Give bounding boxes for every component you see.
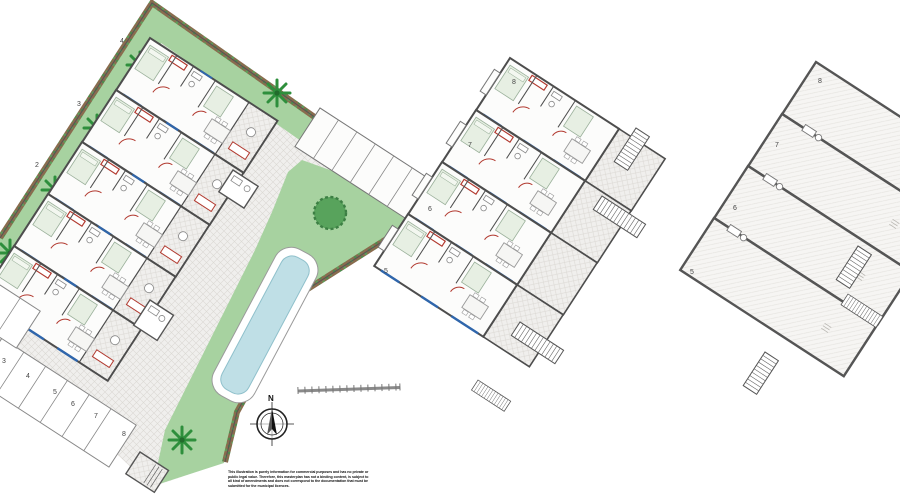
unit-number: 6 — [733, 205, 737, 212]
north-compass-icon — [250, 402, 294, 446]
palm-tree — [169, 427, 195, 453]
parking-number: 8 — [122, 431, 126, 438]
disclaimer-text: This illustration is purely information … — [228, 470, 406, 489]
north-label: N — [268, 394, 274, 403]
site-plan-page: 4 3 2 3 4 5 6 7 8 8 7 6 5 8 7 6 5 N This… — [0, 0, 900, 500]
first-floor-block — [368, 54, 665, 411]
palm-tree — [264, 80, 290, 106]
ground-floor-block — [0, 3, 440, 492]
external-stair — [471, 380, 510, 411]
disclaimer-line: submitted for the municipal licences. — [228, 484, 406, 489]
parking-number: 4 — [26, 373, 30, 380]
unit-number: 5 — [690, 269, 694, 276]
solarium-block — [680, 62, 900, 394]
unit-number: 8 — [818, 78, 822, 85]
unit-number: 5 — [384, 268, 388, 275]
floor-plan-drawing — [0, 0, 900, 500]
scale-bar — [298, 383, 400, 394]
external-stair — [743, 352, 778, 394]
unit-number: 7 — [775, 142, 779, 149]
unit-number: 4 — [120, 38, 124, 45]
unit-number: 6 — [428, 206, 432, 213]
parking-number: 7 — [94, 413, 98, 420]
unit-number: 7 — [468, 142, 472, 149]
unit-number: 8 — [512, 79, 516, 86]
round-tree — [314, 197, 346, 229]
unit-number: 2 — [35, 162, 39, 169]
parking-number: 5 — [53, 389, 57, 396]
unit-number: 3 — [77, 101, 81, 108]
parking-number: 6 — [71, 401, 75, 408]
parking-number: 3 — [2, 358, 6, 365]
